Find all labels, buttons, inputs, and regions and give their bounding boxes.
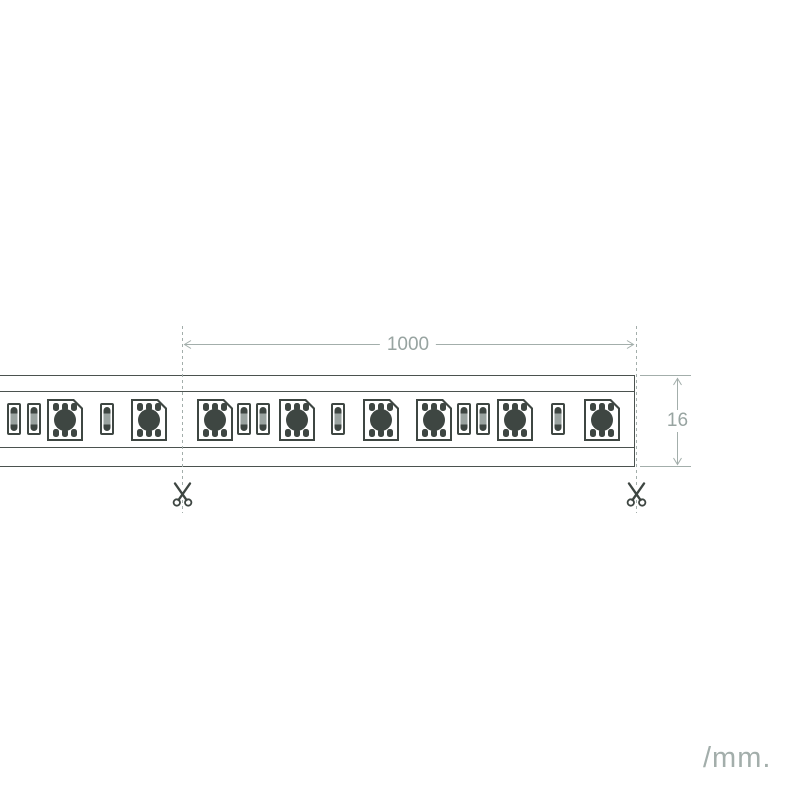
cut-line-right xyxy=(623,326,650,513)
diagram-canvas: 1000 16 /mm. xyxy=(0,0,800,800)
scissors-icon xyxy=(623,481,650,508)
cut-line-left xyxy=(169,326,196,513)
length-dimension-value: 1000 xyxy=(380,334,436,356)
dimension-overlay xyxy=(0,0,800,800)
height-dimension-value: 16 xyxy=(663,410,692,432)
scissors-icon xyxy=(169,481,196,508)
unit-label: /mm. xyxy=(703,742,771,775)
